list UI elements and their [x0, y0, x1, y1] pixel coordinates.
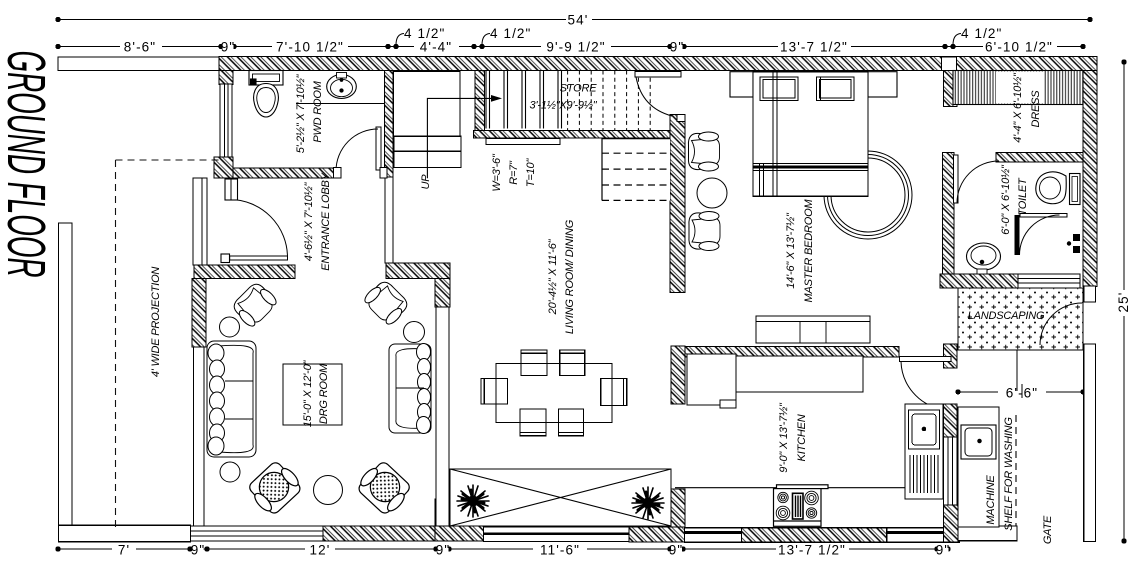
svg-text:6'-10 1/2": 6'-10 1/2"	[985, 40, 1053, 55]
svg-text:SHELF FOR WASHING: SHELF FOR WASHING	[1003, 417, 1015, 531]
svg-text:9": 9"	[191, 543, 206, 558]
svg-text:GATE: GATE	[1042, 515, 1054, 544]
svg-text:20'-4½" X 11'-6": 20'-4½" X 11'-6"	[547, 238, 559, 315]
svg-text:STORE: STORE	[560, 83, 598, 95]
svg-text:DRESS: DRESS	[1030, 90, 1042, 128]
svg-text:9": 9"	[670, 40, 685, 55]
svg-text:4'-4": 4'-4"	[420, 40, 452, 55]
svg-text:KITCHEN: KITCHEN	[796, 414, 808, 461]
svg-text:14'-6" X 13'-7½": 14'-6" X 13'-7½"	[785, 212, 797, 289]
svg-text:DRG ROOM: DRG ROOM	[318, 363, 330, 424]
svg-text:9": 9"	[669, 543, 684, 558]
svg-text:9": 9"	[936, 543, 951, 558]
svg-text:4 1/2": 4 1/2"	[961, 26, 1002, 41]
svg-text:6'-0" X 6'-10½": 6'-0" X 6'-10½"	[1000, 164, 1012, 235]
svg-text:MASTER BEDROOM: MASTER BEDROOM	[803, 199, 815, 303]
svg-text:MACHINE: MACHINE	[985, 474, 997, 524]
svg-text:9": 9"	[221, 40, 236, 55]
svg-text:54': 54'	[568, 13, 589, 28]
svg-text:T=10": T=10"	[525, 158, 537, 188]
svg-text:PWD ROOM: PWD ROOM	[312, 80, 324, 142]
svg-text:7': 7'	[118, 543, 130, 558]
svg-text:11'-6": 11'-6"	[540, 543, 580, 558]
svg-text:15'-0" X 12'-0": 15'-0" X 12'-0"	[302, 359, 314, 427]
svg-text:9'-0" X 13'-7½": 9'-0" X 13'-7½"	[778, 402, 790, 473]
svg-text:4'-6½" X 7'-10½": 4'-6½" X 7'-10½"	[303, 181, 315, 261]
svg-text:TOILET: TOILET	[1017, 177, 1029, 216]
svg-text:4' WIDE PROJECTION: 4' WIDE PROJECTION	[150, 267, 162, 378]
svg-text:5'-2½" X 7'-10½": 5'-2½" X 7'-10½"	[295, 73, 307, 153]
svg-text:3'-1½"X9'-9½": 3'-1½"X9'-9½"	[530, 100, 598, 112]
svg-text:ENTRANCE LOBBY: ENTRANCE LOBBY	[320, 172, 332, 270]
svg-text:13'-7 1/2": 13'-7 1/2"	[780, 40, 848, 55]
svg-text:12': 12'	[310, 543, 331, 558]
svg-text:9": 9"	[436, 543, 451, 558]
svg-text:13'-7 1/2": 13'-7 1/2"	[778, 543, 846, 558]
svg-text:25': 25'	[1116, 292, 1131, 313]
svg-text:R=7": R=7"	[508, 160, 520, 185]
svg-text:4 1/2": 4 1/2"	[404, 26, 445, 41]
svg-text:4 1/2": 4 1/2"	[490, 26, 531, 41]
svg-text:UP: UP	[420, 174, 432, 190]
svg-text:4'-4" X 6'-10½": 4'-4" X 6'-10½"	[1012, 72, 1024, 143]
svg-text:LIVING ROOM/ DINING: LIVING ROOM/ DINING	[564, 219, 576, 334]
svg-text:W=3'-6": W=3'-6"	[491, 153, 503, 192]
svg-text:GROUND FLOOR: GROUND FLOOR	[0, 50, 56, 277]
svg-text:7'-10 1/2": 7'-10 1/2"	[276, 40, 344, 55]
svg-text:LANDSCAPING: LANDSCAPING	[968, 310, 1045, 322]
svg-text:8'-6": 8'-6"	[124, 40, 156, 55]
svg-text:9'-9 1/2": 9'-9 1/2"	[546, 40, 605, 55]
